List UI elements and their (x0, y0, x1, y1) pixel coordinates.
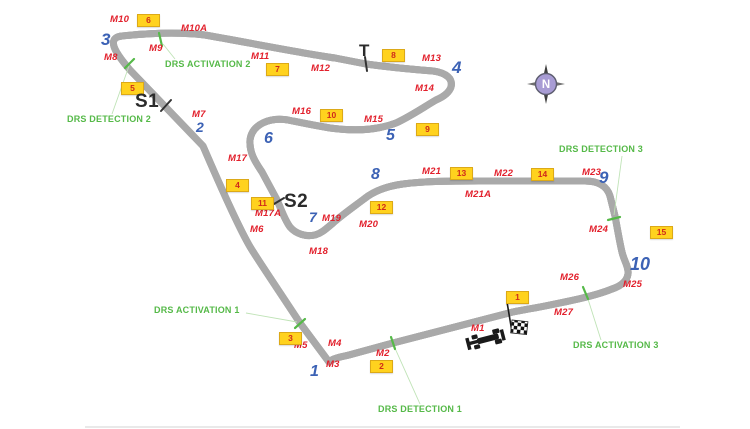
drs-zone-label-drs-activation-3: DRS ACTIVATION 3 (573, 341, 659, 350)
turn-number-10: 10 (630, 255, 650, 273)
marshal-post-m20: M20 (359, 220, 378, 230)
marshal-post-m18: M18 (309, 247, 328, 257)
marshal-post-m26: M26 (560, 273, 579, 283)
marshal-post-m17a: M17A (255, 209, 281, 219)
drs-zone-label-drs-detection-3: DRS DETECTION 3 (559, 145, 643, 154)
light-panel-4: 4 (226, 179, 249, 192)
marshal-post-m9: M9 (149, 44, 163, 54)
light-panel-2: 2 (370, 360, 393, 373)
light-panel-1: 1 (506, 291, 529, 304)
marshal-post-m19: M19 (322, 214, 341, 224)
marshal-post-m6: M6 (250, 225, 264, 235)
light-panel-9: 9 (416, 123, 439, 136)
marshal-post-m10: M10 (110, 15, 129, 25)
sector-marker-s2: S2 (284, 192, 308, 211)
marshal-post-m4: M4 (328, 339, 342, 349)
turn-number-8: 8 (371, 167, 380, 183)
marshal-post-m15: M15 (364, 115, 383, 125)
sector-marker-t: T (359, 42, 370, 59)
marshal-post-m27: M27 (554, 308, 573, 318)
marshal-post-m16: M16 (292, 107, 311, 117)
drs-zone-label-drs-detection-1: DRS DETECTION 1 (378, 405, 462, 414)
marshal-post-m17: M17 (228, 154, 247, 164)
light-panel-14: 14 (531, 168, 554, 181)
turn-number-7: 7 (309, 210, 317, 224)
marshal-post-m12: M12 (311, 64, 330, 74)
marshal-post-m11: M11 (251, 52, 269, 62)
marshal-post-m10a: M10A (181, 24, 207, 34)
light-panel-10: 10 (320, 109, 343, 122)
map-labels: M1M2M3M4M5M6M7M8M9M10M10AM11M12M13M14M15… (0, 0, 750, 429)
drs-zone-label-drs-detection-2: DRS DETECTION 2 (67, 115, 151, 124)
turn-number-6: 6 (264, 131, 273, 147)
light-panel-12: 12 (370, 201, 393, 214)
marshal-post-m25: M25 (623, 280, 642, 290)
light-panel-15: 15 (650, 226, 673, 239)
light-panel-6: 6 (137, 14, 160, 27)
turn-number-1: 1 (310, 364, 319, 380)
light-panel-7: 7 (266, 63, 289, 76)
marshal-post-m13: M13 (422, 54, 441, 64)
marshal-post-m2: M2 (376, 349, 390, 359)
sector-marker-s1: S1 (135, 92, 159, 111)
light-panel-8: 8 (382, 49, 405, 62)
marshal-post-m8: M8 (104, 53, 118, 63)
marshal-post-m24: M24 (589, 225, 608, 235)
drs-zone-label-drs-activation-2: DRS ACTIVATION 2 (165, 60, 251, 69)
turn-number-4: 4 (452, 59, 461, 76)
light-panel-13: 13 (450, 167, 473, 180)
circuit-map: N M1M2M3M4M5M6M7M8M9M10M10AM11M12M13M14M… (0, 0, 750, 429)
marshal-post-m1: M1 (471, 324, 485, 334)
marshal-post-m14: M14 (415, 84, 434, 94)
turn-number-5: 5 (386, 128, 395, 144)
turn-number-2: 2 (196, 120, 204, 134)
light-panel-3: 3 (279, 332, 302, 345)
marshal-post-m21a: M21A (465, 190, 491, 200)
marshal-post-m21: M21 (422, 167, 441, 177)
turn-number-3: 3 (101, 31, 110, 48)
marshal-post-m3: M3 (326, 360, 340, 370)
turn-number-9: 9 (599, 169, 608, 186)
marshal-post-m22: M22 (494, 169, 513, 179)
light-panel-11: 11 (251, 197, 274, 210)
drs-zone-label-drs-activation-1: DRS ACTIVATION 1 (154, 306, 240, 315)
